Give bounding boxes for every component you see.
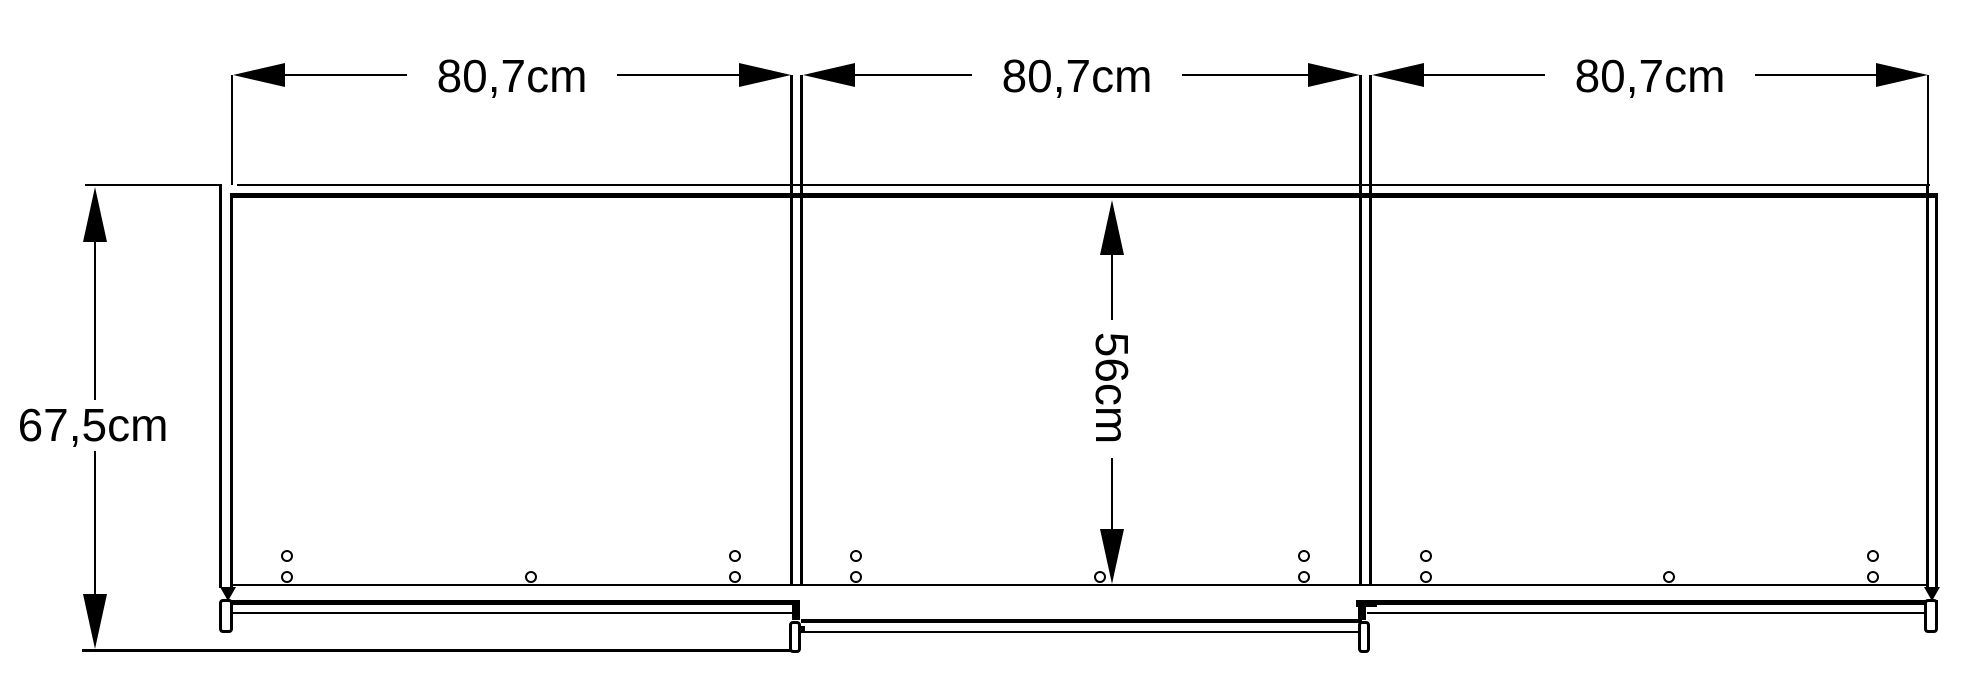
- shelf-pin-hole: [1420, 571, 1432, 583]
- middle-door-rail-thick: [801, 619, 1362, 623]
- shelf-pin-hole: [1867, 550, 1879, 562]
- width-dim-line-seg: [1421, 74, 1545, 76]
- width-dim-line-seg: [1182, 74, 1310, 76]
- shelf-pin-hole: [281, 571, 293, 583]
- shelf-pin-hole: [1298, 571, 1310, 583]
- shelf-pin-hole: [1867, 571, 1879, 583]
- shelf-pin-hole: [1663, 571, 1675, 583]
- width-dim-line-seg: [617, 74, 741, 76]
- dim-arrow-up-icon: [1100, 200, 1124, 255]
- door-joint-hook: [1358, 600, 1366, 620]
- interior-dim-line-seg: [1111, 255, 1113, 320]
- carcass-bottom-line: [232, 584, 1928, 586]
- door-joint-hook: [792, 600, 800, 620]
- wardrobe-dimension-diagram: 80,7cm 80,7cm 80,7cm: [0, 0, 1983, 693]
- right-wall-line: [1935, 198, 1938, 588]
- interior-dim-line-seg: [1111, 458, 1113, 530]
- left-door-rail-thick: [221, 600, 797, 605]
- interior-height-dimension-label: 56cm: [1089, 332, 1135, 444]
- dim-arrow-down-icon: [1100, 529, 1124, 584]
- right-door-edge-profile: [1924, 599, 1938, 633]
- partition-line: [800, 75, 803, 586]
- left-wall-line: [230, 198, 233, 588]
- shelf-pin-hole: [525, 571, 537, 583]
- dim-arrow-left-icon: [803, 63, 855, 87]
- height-dim-line-seg: [94, 242, 96, 400]
- dim-arrow-left-icon: [233, 63, 285, 87]
- left-door-rail-thin: [221, 612, 793, 614]
- carcass-top-thick-line: [230, 193, 1938, 198]
- right-wall-line: [1926, 184, 1929, 588]
- middle-door-rail-thin: [801, 631, 1362, 633]
- dim-arrow-down-icon: [83, 594, 107, 649]
- left-door-edge-profile: [219, 599, 233, 633]
- width-dimension-label-2: 80,7cm: [1002, 53, 1153, 99]
- left-door-bottom-edge: [82, 649, 799, 652]
- width-dim-line-seg: [852, 74, 972, 76]
- width-dim-line-seg: [283, 74, 407, 76]
- middle-door-edge-profile: [1358, 621, 1370, 653]
- partition-line: [1369, 75, 1372, 586]
- shelf-pin-hole: [281, 550, 293, 562]
- dim-arrow-right-icon: [1876, 63, 1928, 87]
- dim-arrow-right-icon: [739, 63, 791, 87]
- shelf-pin-hole: [1420, 550, 1432, 562]
- shelf-pin-hole: [850, 550, 862, 562]
- dim-arrow-up-icon: [83, 187, 107, 242]
- right-door-rail-thick: [1364, 600, 1938, 605]
- shelf-pin-hole: [1298, 550, 1310, 562]
- shelf-pin-hole: [729, 550, 741, 562]
- carcass-top-line: [237, 184, 1930, 186]
- shelf-pin-hole: [850, 571, 862, 583]
- width-dim-line-seg: [1755, 74, 1878, 76]
- left-wall-line: [219, 184, 222, 588]
- extension-line: [1927, 75, 1929, 185]
- right-door-rail-thin: [1367, 612, 1938, 614]
- extension-line: [231, 75, 233, 185]
- height-dimension-label: 67,5cm: [18, 402, 169, 448]
- width-dimension-label-3: 80,7cm: [1575, 53, 1726, 99]
- carcass-top-line: [85, 184, 220, 186]
- shelf-pin-hole: [729, 571, 741, 583]
- dim-arrow-right-icon: [1308, 63, 1360, 87]
- width-dimension-label-1: 80,7cm: [437, 53, 588, 99]
- middle-door-edge-profile: [789, 621, 801, 653]
- height-dim-line-seg: [94, 451, 96, 594]
- dim-arrow-left-icon: [1372, 63, 1424, 87]
- partition-line: [790, 75, 793, 586]
- partition-line: [1359, 75, 1362, 586]
